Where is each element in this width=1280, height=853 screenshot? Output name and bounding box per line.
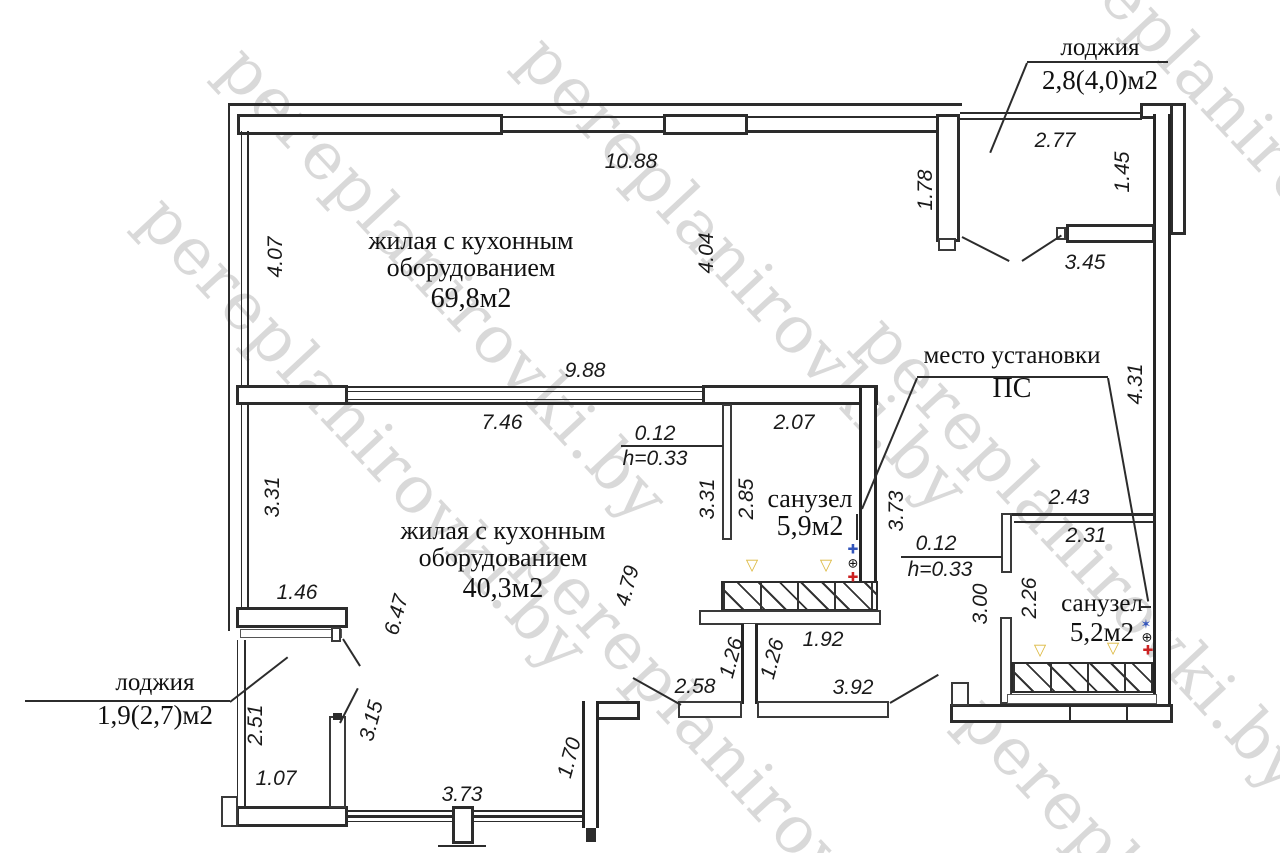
triangle-marker-icon: ▽ [746,555,758,575]
bath1-label: санузел 5,9м2 [757,485,863,542]
wall-mid-line2 [347,391,703,392]
dim-2-58: 2.58 [675,675,716,699]
room-label-bottom: жилая с кухонным оборудованием 40,3м2 [353,517,653,604]
column-tick [438,845,486,847]
bath2-name: санузел [1048,590,1156,617]
wall-left-inner-line [241,131,242,609]
balcony-door-wall [1066,224,1155,243]
dim-2-26: 2.26 [1018,578,1042,619]
wall-mid-line4 [347,402,703,405]
hall-wall-left [678,701,742,718]
dim-h-0-33-a: h=0.33 [623,447,688,471]
triangle-marker-icon: ▽ [820,555,832,575]
room-top-name-line1: жилая с кухонным [321,227,621,254]
bath2-partition-upper [1001,513,1012,573]
loggia-bottom-name: лоджия [70,669,240,696]
dim-7-46: 7.46 [482,411,523,435]
dim-2-07: 2.07 [774,411,815,435]
bath2-hatched-wall [1011,662,1153,693]
window-left-lower [236,607,348,628]
wall-mid-line3 [347,399,703,400]
bath1-ledge [699,610,881,625]
dim-3-45: 3.45 [1065,251,1106,275]
wall-bottom-left [236,806,348,827]
bath1-low-partition [722,404,732,540]
room-bottom-name-line2: оборудованием [353,544,653,571]
dim-4-07: 4.07 [264,237,288,278]
loggia-top-pier [936,114,960,242]
room-top-area: 69,8м2 [321,284,621,314]
loggia-rail-inner [960,118,1142,120]
room-top-name-line2: оборудованием [321,254,621,281]
wall-left-outer-line [228,103,230,631]
dim-1-07: 1.07 [256,767,297,791]
bath1-area: 5,9м2 [757,512,863,542]
wall-end-foot [586,828,596,842]
loggia-top-label: лоджия 2,8(4,0)м2 [1025,34,1175,95]
floor-plan: pereplanirovki.by pereplanirovki.by pere… [0,0,1280,853]
ps-line2: ПС [912,374,1112,404]
bath2-bottom-wall [950,704,1173,723]
hall-wall-right [757,701,889,718]
pier-3-15 [329,716,346,808]
ps-label: место установки ПС [912,342,1112,404]
dim-1-78: 1.78 [914,170,938,211]
dim-3-31-left: 3.31 [261,477,285,518]
dim-2-85: 2.85 [735,479,759,520]
loggia-rail-outer [960,112,1142,114]
dim-4-31: 4.31 [1124,364,1148,405]
wall-left-inner-line2 [247,131,249,609]
dim-3-31-mid: 3.31 [696,479,720,520]
dim-4-04: 4.04 [695,233,719,274]
loggia-top-leader [989,63,1028,154]
bath1-hatched-wall [721,581,878,611]
dim-2-31: 2.31 [1066,524,1107,548]
dim-h-0-33-b: h=0.33 [908,558,973,582]
dim-2-51: 2.51 [244,705,268,746]
wall-top-thin-b [746,116,940,118]
wall-mid-line1 [347,386,703,388]
wall-bottom-right-vert [582,701,599,828]
wall-top-thin-a [501,116,667,118]
pier-leader [339,688,359,724]
room-bottom-name-line1: жилая с кухонным [353,517,653,544]
door-jamb-pier [938,238,956,251]
sill-end-tick [331,627,341,642]
wall-corner-right-bar [1170,103,1186,235]
dim-1-26-b: 1.26 [756,636,790,682]
dim-3-15: 3.15 [355,698,389,744]
window-left-middle [236,385,348,405]
dim-0-12-b: 0.12 [916,532,957,556]
loggia-bottom-label: лоджия 1,9(2,7)м2 [70,669,240,730]
loggia-top-area: 2,8(4,0)м2 [1025,65,1175,95]
dim-3-73-right: 3.73 [885,491,909,532]
dim-10-88: 10.88 [605,150,658,174]
dim-2-77: 2.77 [1035,129,1076,153]
dim-3-92-leader [889,674,938,704]
wall-top-outer-line [228,103,962,106]
dim-0-12-a: 0.12 [635,422,676,446]
bath1-top-wall [702,385,878,405]
wall-top-thin-b2 [746,130,940,133]
triangle-marker-icon: ▽ [1034,640,1046,660]
hall-partition-vertical [741,624,758,704]
dim-1-92: 1.92 [803,628,844,652]
ps-line1: место установки [912,342,1112,369]
column-bottom [452,806,474,844]
cold-water-icon: ✚ [848,543,859,556]
loggia-bottom-area: 1,9(2,7)м2 [70,700,240,730]
hot-water-icon: ✚ [848,571,859,584]
room-label-top: жилая с кухонным оборудованием 69,8м2 [321,227,621,314]
triangle-marker-icon: ▽ [1107,638,1119,658]
loggia-top-name: лоджия [1025,34,1175,61]
bath2-ledge [1007,694,1157,704]
bath2-bottom-step [951,682,969,706]
dim-3-92: 3.92 [833,676,874,700]
dim-3-73-bottom: 3.73 [442,783,483,807]
dim-2-43: 2.43 [1049,486,1090,510]
door-opening-slash [1021,235,1062,262]
door-opening-slash [962,236,1010,262]
bath2-bottom-divider [1126,706,1128,721]
sill-leader [342,638,361,666]
bath2-bottom-divider [1069,706,1071,721]
bath1-name: санузел [757,485,863,512]
dim-1-45: 1.45 [1111,152,1135,193]
wall-bottom-left-step [221,796,238,827]
dim-3-00: 3.00 [969,584,993,625]
window-top-middle [663,114,748,135]
sewer-icon: ⊕ [848,557,859,570]
hot-water-icon: ✚ [1143,644,1154,657]
window-top-left [237,114,503,135]
dim-9-88: 9.88 [565,359,606,383]
sill-left-lower [240,629,342,638]
dim-1-46: 1.46 [277,581,318,605]
wall-top-thin-a2 [501,130,667,133]
